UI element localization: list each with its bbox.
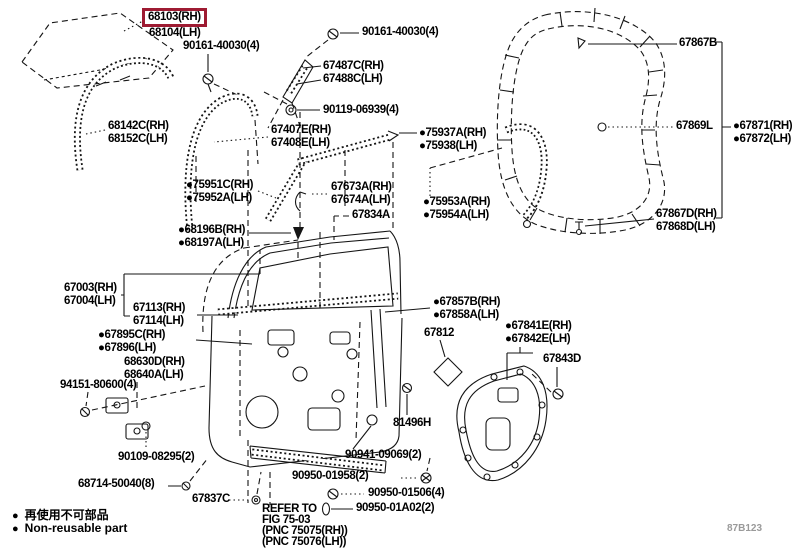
- part-number[interactable]: 67004(LH): [64, 295, 117, 308]
- label-molding-outer[interactable]: ●75937A(RH) ●75938(LH): [419, 127, 486, 152]
- part-number[interactable]: ●75951C(RH): [186, 179, 253, 192]
- part-number[interactable]: 67408E(LH): [271, 137, 331, 150]
- label-plug-a[interactable]: 90950-01958(2): [292, 470, 368, 483]
- label-clip-67837[interactable]: 67837C: [192, 493, 230, 506]
- parts-diagram-page: 68103(RH) 68104(LH) 90161-40030(4) 90161…: [0, 0, 796, 549]
- label-plug-c[interactable]: 90950-01A02(2): [356, 502, 434, 515]
- part-number[interactable]: 67843D: [543, 353, 581, 366]
- legend-en-text: Non-reusable part: [25, 521, 128, 535]
- part-number[interactable]: ●67858A(LH): [433, 309, 500, 322]
- part-number[interactable]: 67869L: [676, 120, 713, 133]
- label-weatherstrip-btm[interactable]: 67867D(RH) 67868D(LH): [656, 208, 717, 233]
- part-number[interactable]: 68142C(RH): [108, 120, 169, 133]
- part-number[interactable]: 67487C(RH): [323, 60, 384, 73]
- label-door-glass[interactable]: 68103(RH) 68104(LH): [146, 11, 207, 39]
- screw-icon: [305, 29, 359, 58]
- figure-code: 87B123: [727, 523, 762, 534]
- part-number[interactable]: ●67895C(RH): [98, 329, 165, 342]
- label-run-channel[interactable]: 68142C(RH) 68152C(LH): [108, 120, 169, 145]
- label-channel-front[interactable]: 67407E(RH) 67408E(LH): [271, 124, 331, 149]
- part-number[interactable]: 90119-06939(4): [323, 104, 399, 117]
- legend-en: ●Non-reusable part: [12, 521, 127, 535]
- part-number[interactable]: 68104(LH): [149, 27, 207, 40]
- part-number[interactable]: ●75954A(LH): [423, 209, 490, 222]
- diagram-line-art: [0, 0, 796, 549]
- part-number[interactable]: 67003(RH): [64, 282, 117, 295]
- non-reusable-bullet-icon: ●: [12, 523, 19, 535]
- part-number[interactable]: ●67857B(RH): [433, 296, 500, 309]
- part-number[interactable]: 67673A(RH): [331, 181, 392, 194]
- part-number[interactable]: 81496H: [393, 417, 431, 430]
- label-weatherstrip-top[interactable]: 67867B: [679, 37, 717, 50]
- label-ws-fastener[interactable]: ●67871(RH) ●67872(LH): [733, 120, 792, 145]
- label-refer-note: REFER TO FIG 75-03 (PNC 75075(RH)) (PNC …: [262, 504, 347, 548]
- label-molding-inner[interactable]: ●75953A(RH) ●75954A(LH): [423, 196, 490, 221]
- service-cover-drawing: [457, 347, 563, 481]
- part-number[interactable]: 90941-09069(2): [345, 449, 421, 462]
- part-number[interactable]: 67407E(RH): [271, 124, 331, 137]
- label-weatherstrip-mid[interactable]: 67869L: [676, 120, 713, 133]
- part-number[interactable]: ●67896(LH): [98, 342, 165, 355]
- front-channel-drawing: [188, 96, 268, 230]
- door-panel-drawing: [203, 112, 402, 505]
- part-number[interactable]: ●67871(RH): [733, 120, 792, 133]
- part-number[interactable]: ●75952A(LH): [186, 192, 253, 205]
- label-damper[interactable]: 67812: [424, 327, 454, 340]
- label-bolt-81496[interactable]: 81496H: [393, 417, 431, 430]
- part-number[interactable]: 90950-01958(2): [292, 470, 368, 483]
- part-number[interactable]: 90161-40030(4): [362, 26, 438, 39]
- label-cover-clip[interactable]: 67843D: [543, 353, 581, 366]
- part-number[interactable]: ●75938(LH): [419, 140, 486, 153]
- screw-icon: [203, 54, 248, 100]
- label-pad[interactable]: ●68196B(RH) ●68197A(LH): [178, 224, 245, 249]
- part-number[interactable]: 67113(RH): [133, 302, 185, 315]
- label-molding-rear[interactable]: 67673A(RH) 67674A(LH): [331, 181, 392, 206]
- label-door-panel[interactable]: 67003(RH) 67004(LH): [64, 282, 117, 307]
- part-number[interactable]: ●75937A(RH): [419, 127, 486, 140]
- label-frame-corner[interactable]: 67487C(RH) 67488C(LH): [323, 60, 384, 85]
- part-number[interactable]: 67867D(RH): [656, 208, 717, 221]
- legend-jp-text: 再使用不可部品: [25, 508, 109, 522]
- part-number[interactable]: 67868D(LH): [656, 221, 717, 234]
- note-line: (PNC 75076(LH)): [262, 537, 347, 548]
- label-grommet-90941[interactable]: 90941-09069(2): [345, 449, 421, 462]
- part-number[interactable]: 67674A(LH): [331, 194, 392, 207]
- part-number[interactable]: 67867B: [679, 37, 717, 50]
- part-number[interactable]: ●68197A(LH): [178, 237, 245, 250]
- part-number[interactable]: ●75953A(RH): [423, 196, 490, 209]
- part-number[interactable]: 67488C(LH): [323, 73, 384, 86]
- label-door-sub[interactable]: 67113(RH) 67114(LH): [133, 302, 185, 327]
- label-hinge-bolt[interactable]: 94151-80600(4): [60, 379, 136, 392]
- label-seal[interactable]: ●67895C(RH) ●67896(LH): [98, 329, 165, 354]
- label-screw-68714[interactable]: 68714-50040(8): [78, 478, 154, 491]
- part-number[interactable]: 90161-40030(4): [183, 40, 259, 53]
- label-hinge-bolt2[interactable]: 90109-08295(2): [118, 451, 194, 464]
- label-plug-b[interactable]: 90950-01506(4): [368, 487, 444, 500]
- label-bolt-frame[interactable]: 90119-06939(4): [323, 104, 399, 117]
- part-number[interactable]: 68152C(LH): [108, 133, 169, 146]
- part-number[interactable]: 67834A: [352, 209, 390, 222]
- label-channel-rear[interactable]: 67834A: [352, 209, 390, 222]
- label-screw-frame[interactable]: 90161-40030(4): [362, 26, 438, 39]
- label-cushion[interactable]: ●67857B(RH) ●67858A(LH): [433, 296, 500, 321]
- part-number[interactable]: 68714-50040(8): [78, 478, 154, 491]
- part-number[interactable]: ●67872(LH): [733, 133, 792, 146]
- part-number[interactable]: 67812: [424, 327, 454, 340]
- part-number[interactable]: 90109-08295(2): [118, 451, 194, 464]
- run-channel-drawing: [77, 60, 171, 170]
- corner-frame-drawing: [268, 60, 321, 128]
- label-service-cover[interactable]: ●67841E(RH) ●67842E(LH): [505, 320, 571, 345]
- part-number[interactable]: 67837C: [192, 493, 230, 506]
- part-number[interactable]: 94151-80600(4): [60, 379, 136, 392]
- part-number[interactable]: ●68196B(RH): [178, 224, 245, 237]
- part-number[interactable]: 90950-01A02(2): [356, 502, 434, 515]
- label-check[interactable]: 68630D(RH) 68640A(LH): [124, 356, 185, 381]
- part-number[interactable]: ●67842E(LH): [505, 333, 571, 346]
- part-number[interactable]: 68630D(RH): [124, 356, 185, 369]
- label-molding-front[interactable]: ●75951C(RH) ●75952A(LH): [186, 179, 253, 204]
- label-screw-glass[interactable]: 90161-40030(4): [183, 40, 259, 53]
- part-number[interactable]: ●67841E(RH): [505, 320, 571, 333]
- part-number[interactable]: 90950-01506(4): [368, 487, 444, 500]
- part-number[interactable]: 67114(LH): [133, 315, 185, 328]
- part-number-highlighted[interactable]: 68103(RH): [142, 8, 207, 27]
